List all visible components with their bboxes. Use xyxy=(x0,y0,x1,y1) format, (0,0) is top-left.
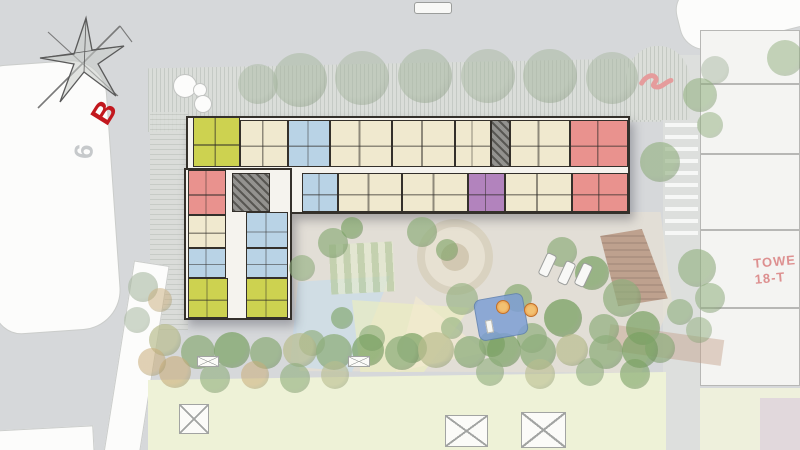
compass-rose-icon xyxy=(28,8,140,120)
pool-umbrella xyxy=(524,303,538,317)
paving-east-pink xyxy=(760,398,800,450)
road-corner xyxy=(0,425,95,450)
garden-sculpture-icon xyxy=(636,64,678,94)
tree xyxy=(341,217,363,239)
tree xyxy=(523,49,577,103)
apartment-unit xyxy=(468,173,505,212)
tree xyxy=(214,332,250,368)
tree xyxy=(331,307,353,329)
tree xyxy=(321,361,349,389)
apartment-unit xyxy=(246,278,288,318)
tree xyxy=(436,239,458,261)
tree xyxy=(767,40,800,76)
pool-umbrella xyxy=(496,300,510,314)
tree xyxy=(640,142,680,182)
apartment-unit xyxy=(188,170,226,215)
apartment-unit xyxy=(491,120,510,167)
tree xyxy=(525,359,555,389)
tree xyxy=(200,363,230,393)
apartment-unit xyxy=(188,215,226,248)
tree xyxy=(544,299,582,337)
neighbor-room xyxy=(700,154,800,230)
apartment-unit xyxy=(330,120,392,167)
tree xyxy=(446,283,478,315)
apartment-unit xyxy=(338,173,402,212)
tree xyxy=(289,255,315,281)
tree xyxy=(576,358,604,386)
apartment-unit xyxy=(510,120,570,167)
apartment-unit xyxy=(246,248,288,278)
tree xyxy=(603,279,641,317)
tree xyxy=(697,112,723,138)
tree xyxy=(620,359,650,389)
apartment-unit xyxy=(302,173,338,212)
apartment-unit xyxy=(232,173,270,212)
skylight-planter xyxy=(197,356,219,367)
round-planter xyxy=(194,95,212,113)
apartment-unit xyxy=(455,120,491,167)
apartment-unit xyxy=(188,248,226,278)
skylight-planter xyxy=(445,415,488,447)
apartment-unit xyxy=(572,173,628,212)
apartment-unit xyxy=(392,120,455,167)
tree xyxy=(667,299,693,325)
skylight-planter xyxy=(521,412,566,448)
tree xyxy=(238,64,278,104)
tree xyxy=(476,358,504,386)
skylight-planter xyxy=(179,404,209,434)
tree xyxy=(418,332,454,368)
tree xyxy=(148,288,172,312)
tree xyxy=(683,78,717,112)
tree xyxy=(461,49,515,103)
tree xyxy=(273,53,327,107)
tree xyxy=(335,51,389,105)
skylight-planter xyxy=(348,356,370,367)
apartment-unit xyxy=(570,120,628,167)
apartment-unit xyxy=(402,173,468,212)
apartment-unit xyxy=(288,120,330,167)
tree xyxy=(283,333,317,367)
tree xyxy=(138,348,166,376)
car xyxy=(414,2,452,14)
tree xyxy=(280,363,310,393)
tree xyxy=(241,361,269,389)
tree xyxy=(695,283,725,313)
apartment-unit xyxy=(505,173,572,212)
tree xyxy=(124,307,150,333)
tree xyxy=(398,49,452,103)
tree xyxy=(385,336,419,370)
apartment-unit xyxy=(246,212,288,248)
tree xyxy=(586,52,638,104)
apartment-unit xyxy=(188,278,228,318)
tree xyxy=(686,317,712,343)
apartment-unit xyxy=(240,120,288,167)
tree xyxy=(407,217,437,247)
apartment-unit xyxy=(193,117,240,167)
site-plan-canvas: B 9 TOWE 18-T xyxy=(0,0,800,450)
tree xyxy=(678,249,716,287)
tower-name-label: TOWE 18-T xyxy=(753,252,798,288)
